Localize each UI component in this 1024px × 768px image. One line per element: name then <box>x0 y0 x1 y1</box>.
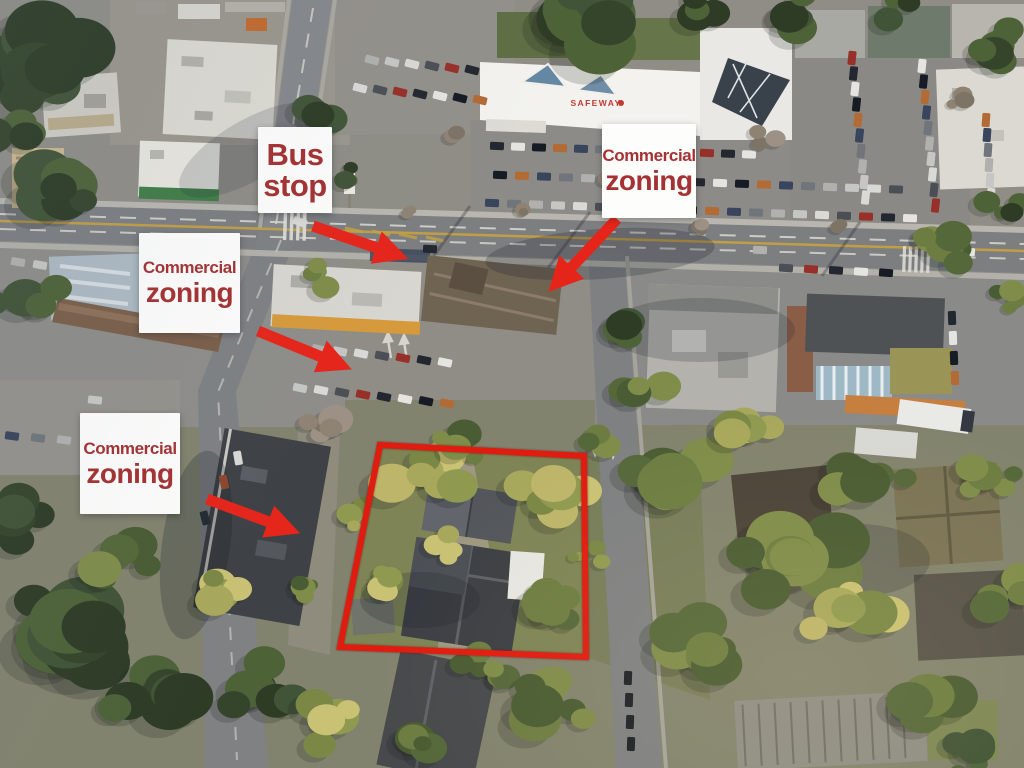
commercial-zoning-label-1-line2: zoning <box>605 167 692 195</box>
aerial-photo: SAFEWAY <box>0 0 1024 768</box>
commercial-zoning-label-2-line2: zoning <box>146 279 233 307</box>
commercial-zoning-label-2: Commercial zoning <box>139 233 240 333</box>
bus-stop-label-line1: Bus <box>266 139 323 170</box>
commercial-zoning-label-3: Commercial zoning <box>80 413 180 514</box>
commercial-zoning-label-3-line1: Commercial <box>83 440 176 457</box>
commercial-zoning-label-1: Commercial zoning <box>602 124 696 218</box>
bus-stop-label: Bus stop <box>258 127 332 213</box>
safeway-logo-icon <box>618 100 624 106</box>
right-white-building <box>936 67 1024 190</box>
awning-building <box>270 264 421 335</box>
safeway-sign-text: SAFEWAY <box>570 98 621 108</box>
aerial-scene: SAFEWAY <box>0 0 1024 768</box>
bus-stop-label-line2: stop <box>263 170 326 201</box>
commercial-zoning-label-1-line1: Commercial <box>602 147 695 164</box>
commercial-zoning-label-3-line2: zoning <box>86 460 173 488</box>
bus-shelter <box>370 248 430 263</box>
commercial-zoning-label-2-line1: Commercial <box>143 259 236 276</box>
